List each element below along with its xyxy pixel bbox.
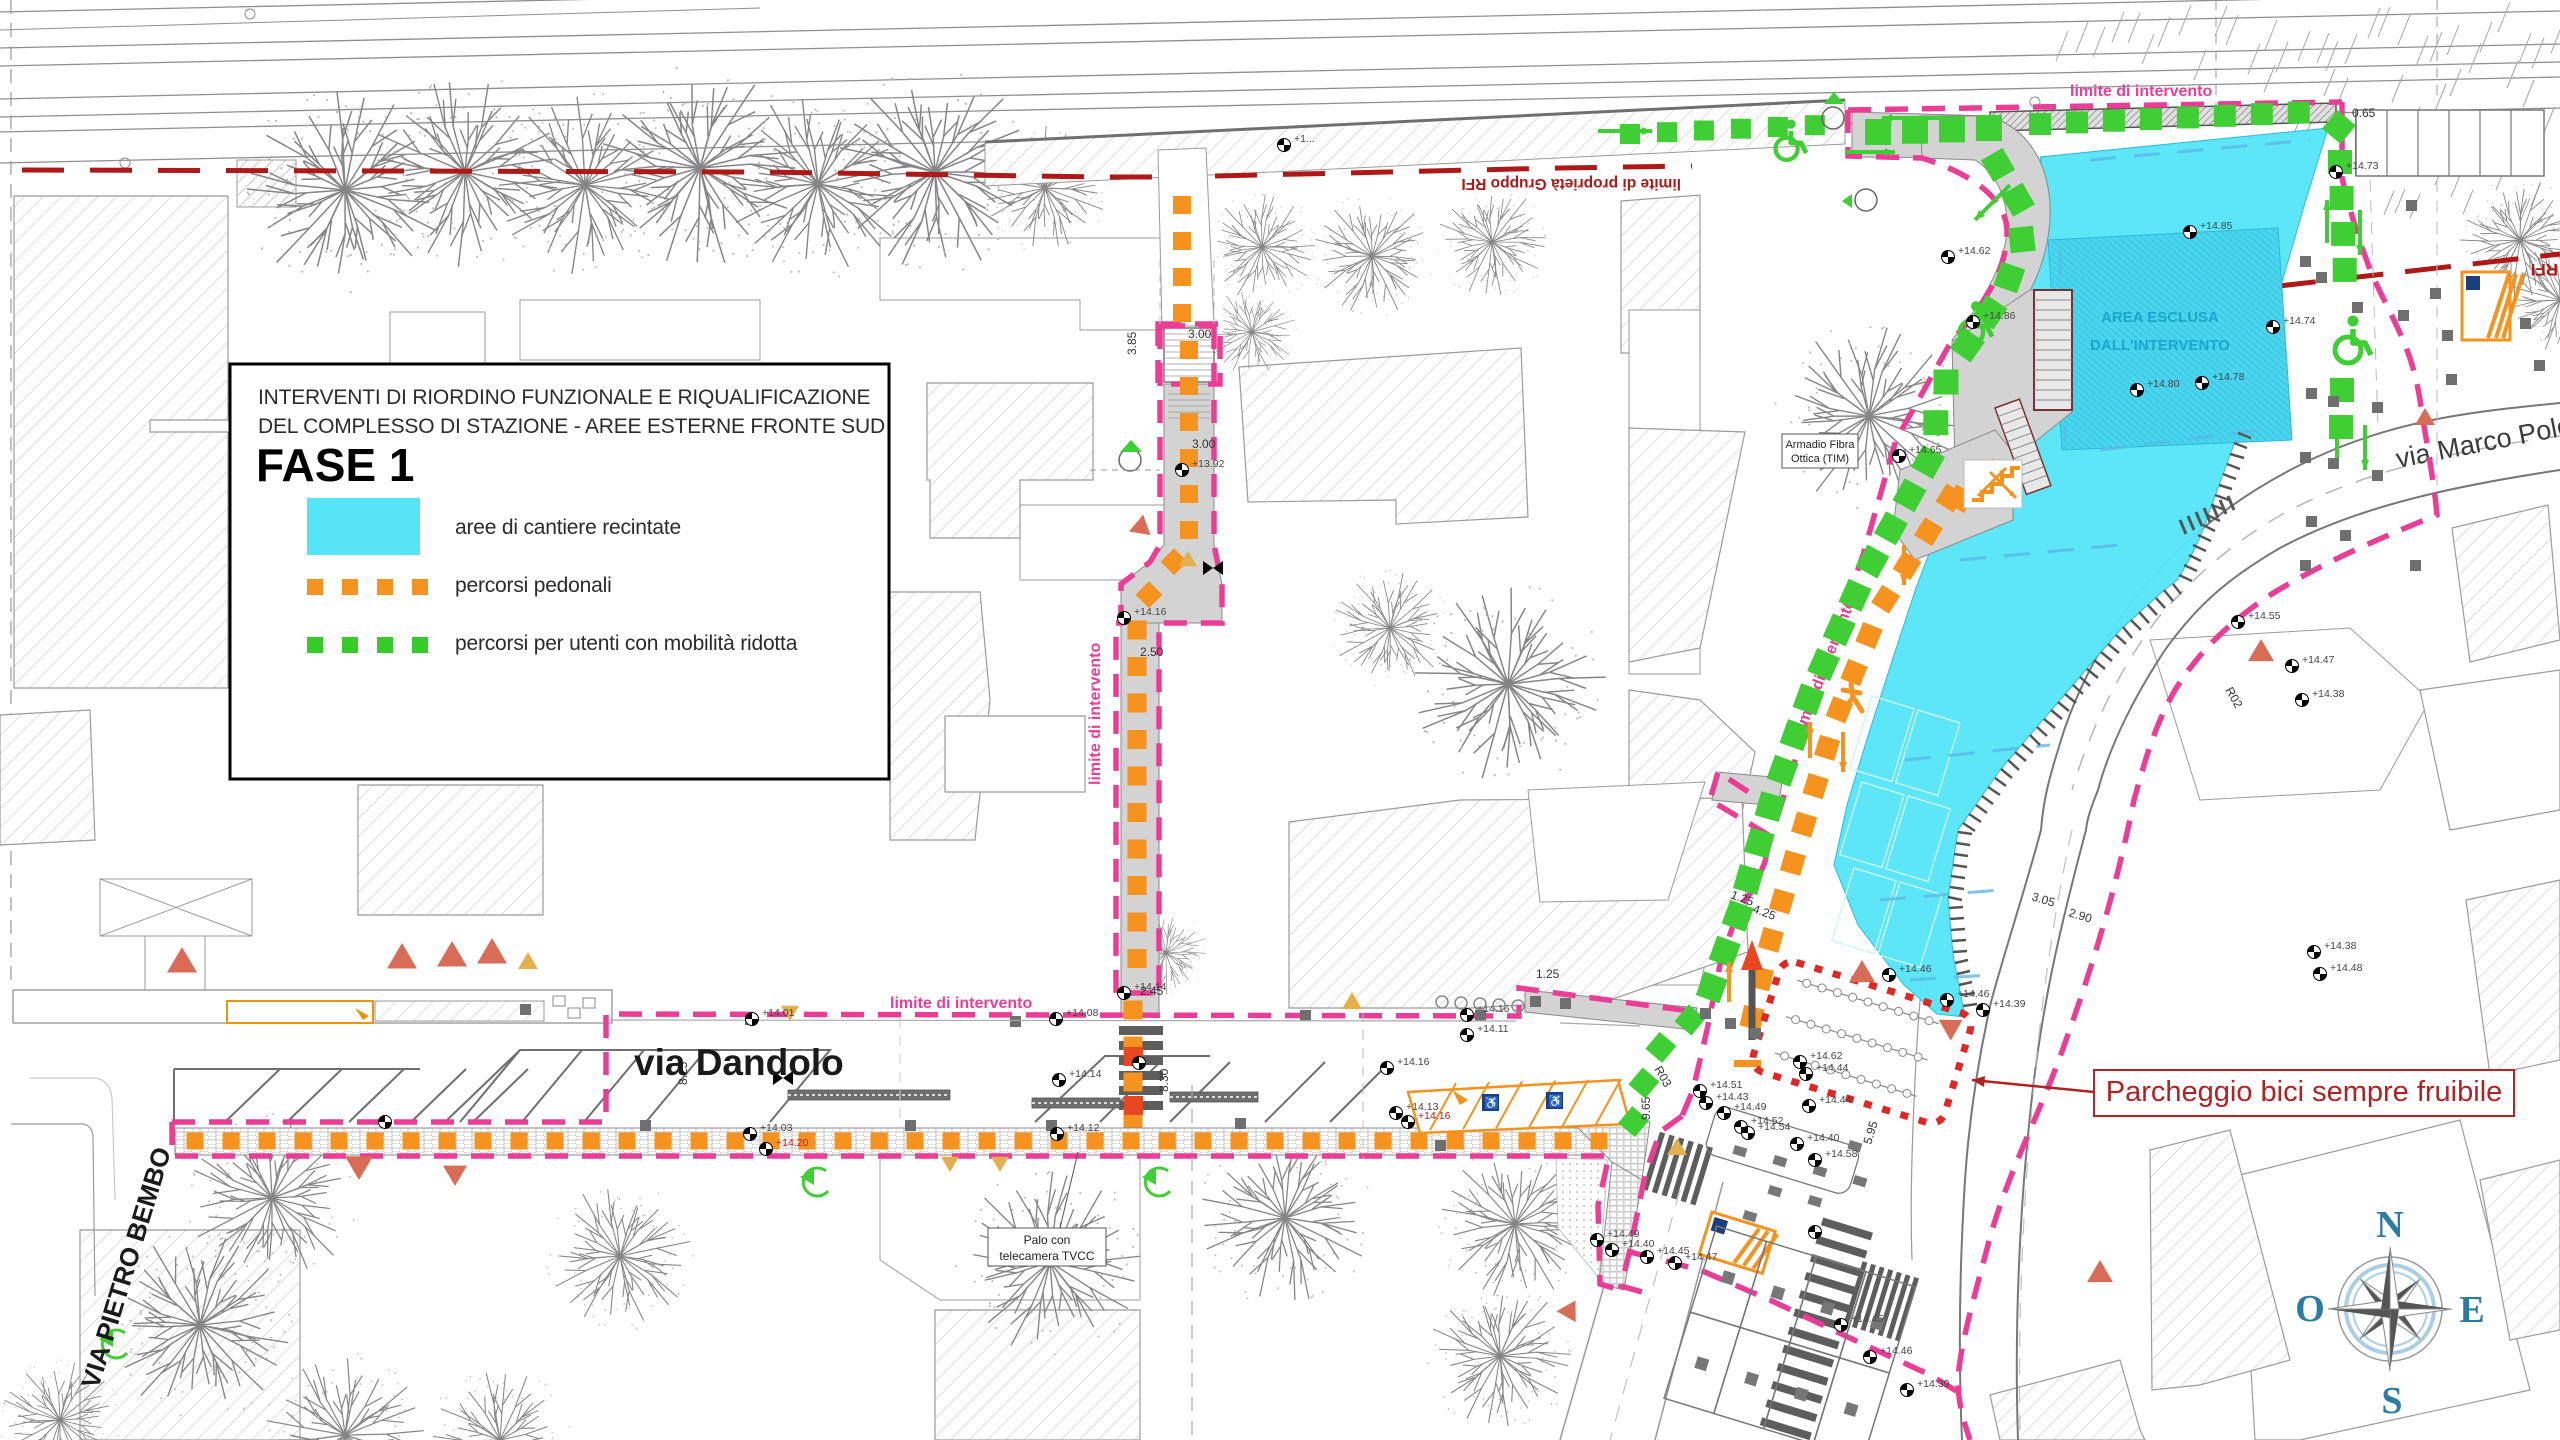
svg-text:limite di intervento: limite di intervento [1087,643,1104,785]
svg-text:+14.03: +14.03 [760,1122,793,1134]
svg-text:+14.86: +14.86 [1983,310,2016,322]
svg-text:+14.85: +14.85 [2200,220,2233,232]
svg-text:+14.11: +14.11 [1477,1023,1509,1035]
svg-text:+1...: +1... [1294,133,1315,145]
svg-text:limite di intervento: limite di intervento [2070,83,2212,100]
svg-text:0.65: 0.65 [2352,106,2376,120]
svg-text:+14.47: +14.47 [2302,654,2335,666]
svg-text:+14.46: +14.46 [1957,988,1990,1000]
svg-text:♿: ♿ [1484,1096,1499,1110]
svg-text:percorsi per utenti con mobili: percorsi per utenti con mobilità ridotta [455,632,798,655]
svg-text:3.85: 3.85 [1125,331,1139,355]
svg-text:+14.80: +14.80 [2147,378,2180,390]
svg-text:+14.62: +14.62 [1958,245,1991,257]
svg-text:2.50: 2.50 [1140,645,1164,659]
svg-text:+14.39: +14.39 [1993,998,2026,1010]
svg-text:+14.44: +14.44 [1816,1062,1849,1074]
svg-text:+14.55: +14.55 [2248,610,2281,622]
svg-text:+14.40: +14.40 [1807,1132,1840,1144]
svg-text:O: O [2295,1288,2325,1330]
svg-text:1.25: 1.25 [1536,967,1560,981]
svg-text:+14.47: +14.47 [1685,1251,1718,1263]
svg-text:E: E [2459,1289,2484,1331]
svg-text:9.65: 9.65 [1639,1096,1653,1120]
svg-text:limite di proprietà Gruppo RFI: limite di proprietà Gruppo RFI [1461,175,1681,192]
svg-text:+14.65: +14.65 [1909,444,1942,456]
svg-text:♿: ♿ [1548,1094,1563,1108]
svg-text:+14.14: +14.14 [1069,1068,1102,1080]
svg-text:+14.08: +14.08 [1066,1007,1099,1019]
svg-text:FASE 1: FASE 1 [256,439,415,491]
svg-text:8.30: 8.30 [1157,1068,1171,1092]
svg-text:+14.01: +14.01 [762,1007,795,1019]
svg-text:+13.92: +13.92 [1192,458,1225,470]
svg-text:Armadio Fibra: Armadio Fibra [1785,439,1855,451]
svg-text:N: N [2376,1204,2403,1246]
svg-text:+14.48: +14.48 [2330,962,2363,974]
svg-text:aree di cantiere recintate: aree di cantiere recintate [455,516,681,539]
svg-text:telecamera TVCC: telecamera TVCC [999,1249,1094,1263]
svg-text:S: S [2381,1380,2402,1422]
svg-text:Palo con: Palo con [1024,1233,1071,1247]
svg-text:+14.38: +14.38 [2324,940,2357,952]
svg-text:INTERVENTI DI RIORDINO FUNZION: INTERVENTI DI RIORDINO FUNZIONALE E RIQU… [258,386,870,409]
svg-text:+14.73: +14.73 [2346,160,2379,172]
svg-text:+14.62: +14.62 [1810,1050,1843,1062]
svg-text:DALL'INTERVENTO: DALL'INTERVENTO [2090,337,2230,354]
svg-text:+14.78: +14.78 [2212,371,2245,383]
svg-text:+14.16: +14.16 [1134,606,1167,618]
svg-text:+14.40: +14.40 [1622,1238,1655,1250]
svg-text:3.00: 3.00 [1188,327,1212,341]
svg-text:RFI: RFI [2531,260,2558,279]
svg-text:+14.39: +14.39 [1917,1378,1950,1390]
svg-text:limite di intervento: limite di intervento [890,995,1032,1012]
svg-text:+14.46: +14.46 [1899,963,1932,975]
svg-text:+14.38: +14.38 [2312,688,2345,700]
svg-text:+14.16: +14.16 [1418,1110,1451,1122]
svg-text:AREA ESCLUSA: AREA ESCLUSA [2101,309,2219,326]
svg-text:percorsi pedonali: percorsi pedonali [455,574,612,597]
svg-text:+14.51: +14.51 [1710,1079,1743,1091]
svg-text:+14.49: +14.49 [1734,1101,1767,1113]
svg-text:+14.12: +14.12 [1067,1122,1100,1134]
svg-text:+14.54: +14.54 [1758,1121,1791,1133]
svg-text:+14.20: +14.20 [776,1137,809,1149]
svg-text:+14.74: +14.74 [2283,315,2316,327]
svg-text:DEL COMPLESSO DI STAZIONE - AR: DEL COMPLESSO DI STAZIONE - AREE ESTERNE… [258,415,885,438]
svg-text:3.00: 3.00 [1192,437,1216,451]
svg-text:via Dandolo: via Dandolo [634,1042,844,1083]
svg-text:+14.45: +14.45 [1851,1313,1884,1325]
svg-text:+14.46: +14.46 [1880,1345,1913,1357]
svg-text:2.45: 2.45 [1140,984,1164,998]
svg-text:Parcheggio bici sempre fruibil: Parcheggio bici sempre fruibile [2106,1076,2503,1108]
svg-text:+14.58: +14.58 [1825,1148,1858,1160]
svg-text:+14.16: +14.16 [1397,1056,1430,1068]
svg-text:Ottica (TIM): Ottica (TIM) [1791,453,1849,465]
svg-text:+14.44: +14.44 [1819,1094,1852,1106]
